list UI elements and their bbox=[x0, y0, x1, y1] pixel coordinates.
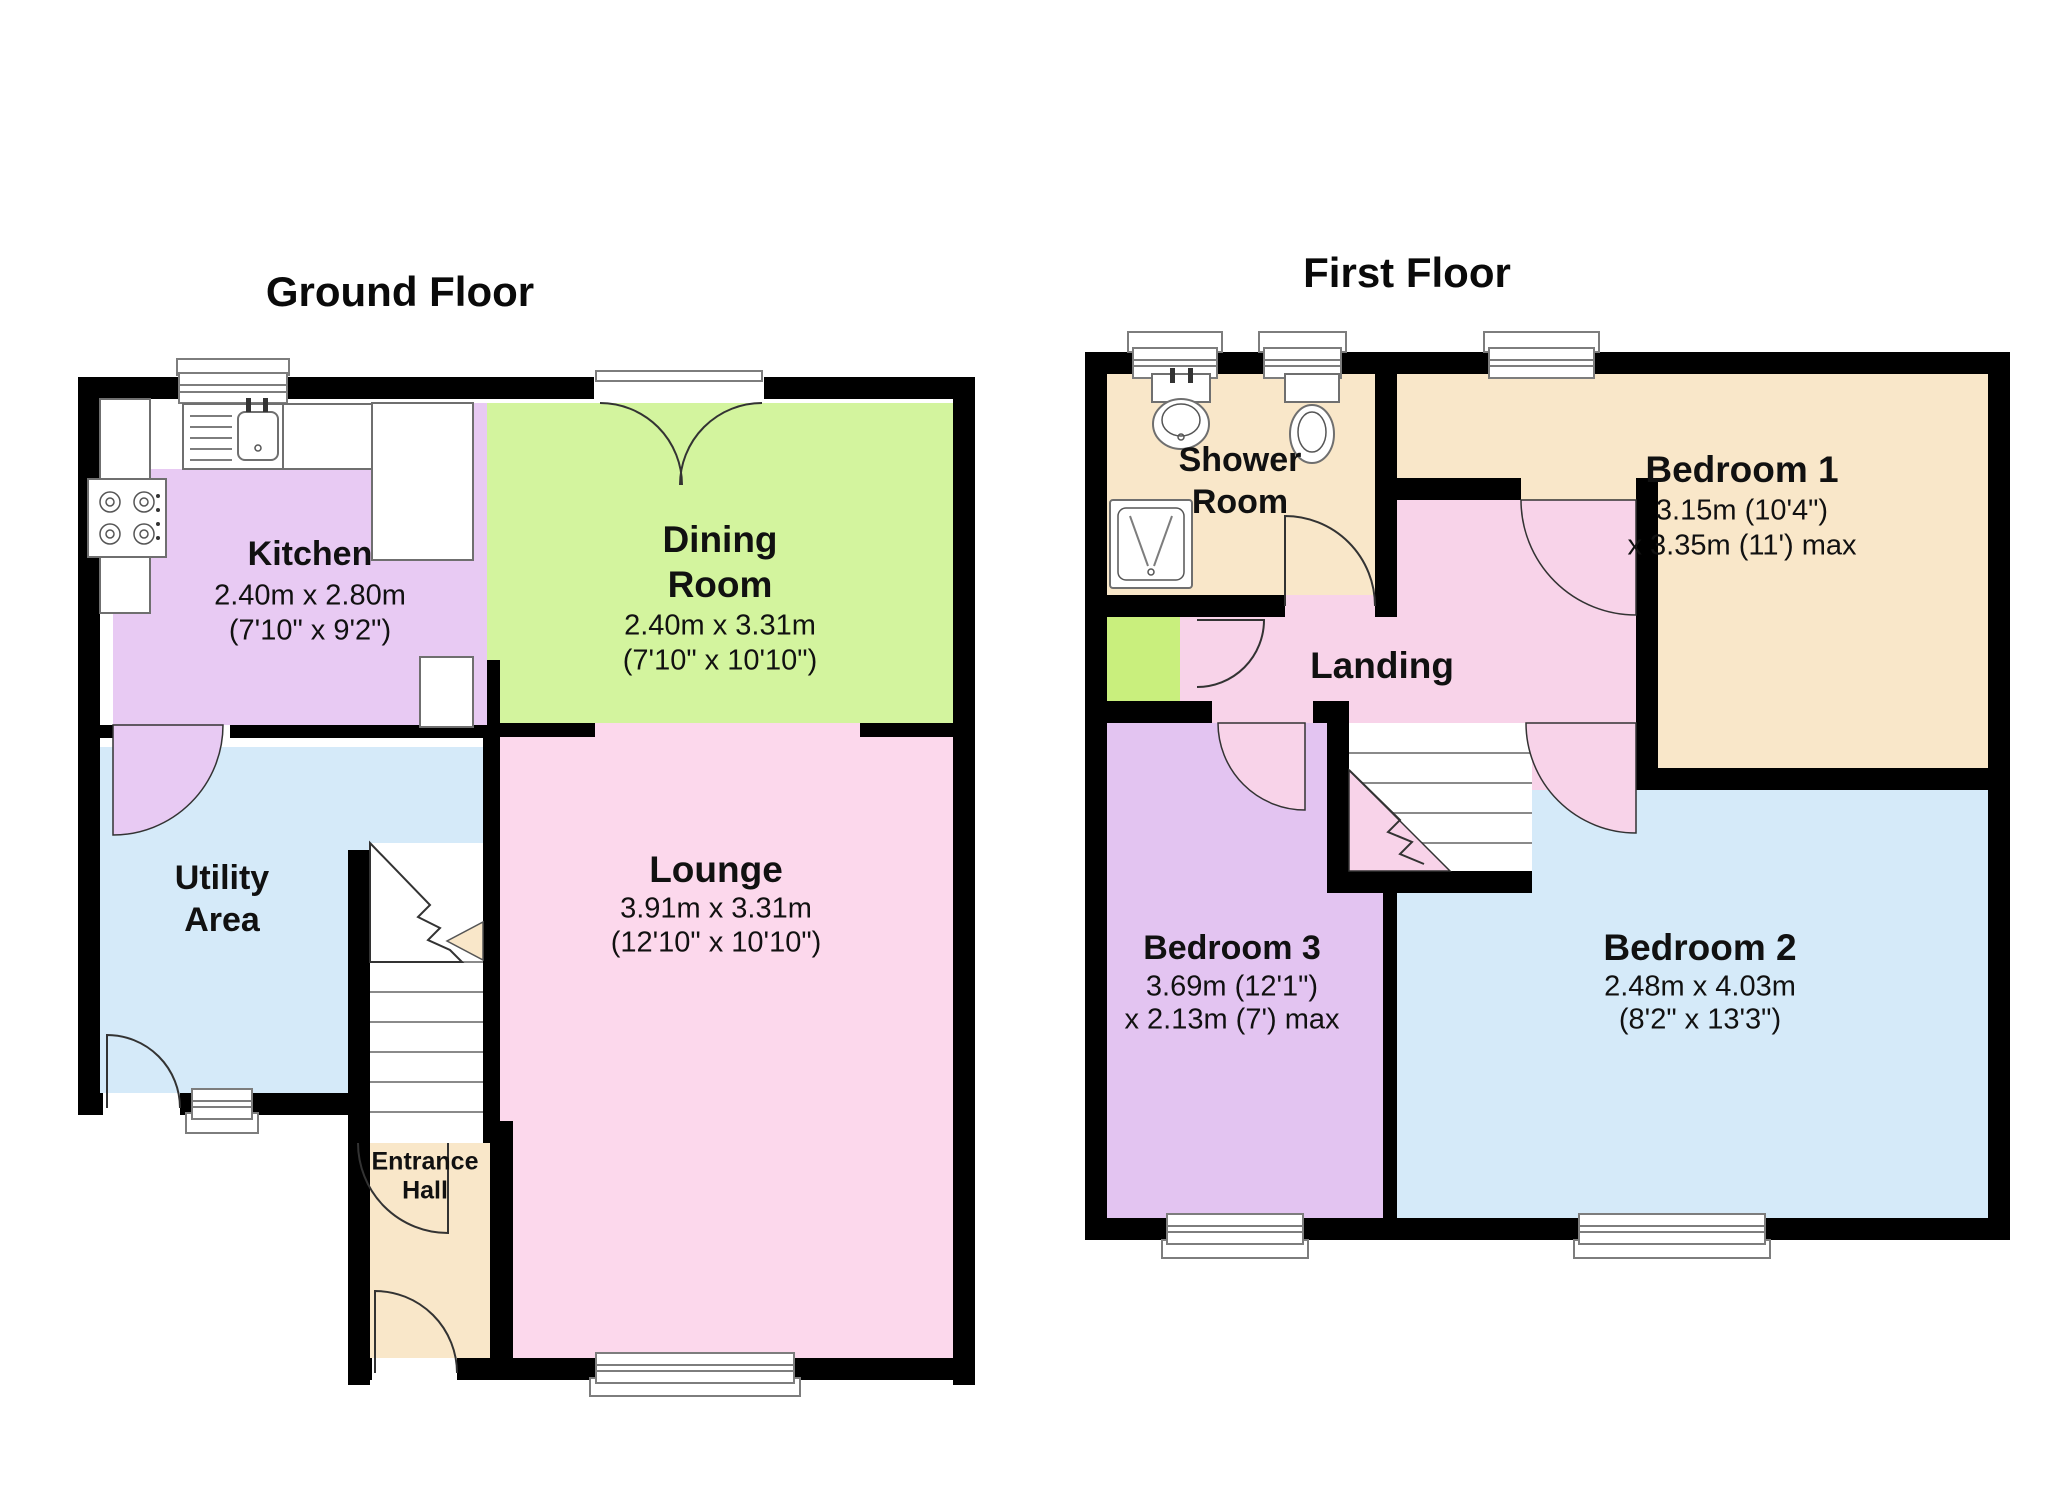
utility-door-gap bbox=[103, 1093, 180, 1115]
dining-dim2: (7'10" x 10'10") bbox=[623, 645, 818, 677]
bedroom1-dim2: x 3.35m (11') max bbox=[1627, 530, 1857, 562]
first-floor-plan: First Floor bbox=[1085, 249, 2010, 1258]
bedroom2-label: Bedroom 2 bbox=[1603, 927, 1796, 968]
kitchen-dim2: (7'10" x 9'2") bbox=[229, 615, 391, 647]
bedroom1-window bbox=[1489, 348, 1594, 378]
entrance-label-1: Entrance bbox=[372, 1148, 479, 1176]
kitchen-window bbox=[179, 373, 287, 403]
dining-label-2: Room bbox=[668, 564, 773, 605]
ground-floor-title: Ground Floor bbox=[266, 268, 534, 315]
bedroom2-dim2: (8'2" x 13'3") bbox=[1619, 1004, 1781, 1036]
bedroom2-dim1: 2.48m x 4.03m bbox=[1604, 971, 1796, 1003]
bedroom3-dim2: x 2.13m (7') max bbox=[1124, 1004, 1340, 1036]
dining-dim1: 2.40m x 3.31m bbox=[624, 610, 816, 642]
floorplan-canvas: Ground Floor bbox=[0, 0, 2048, 1489]
sink-basin-icon bbox=[238, 412, 278, 460]
stove-icon bbox=[88, 479, 166, 557]
kitchen-counter bbox=[372, 403, 473, 560]
first-floor-title: First Floor bbox=[1303, 249, 1511, 296]
lounge-dim1: 3.91m x 3.31m bbox=[620, 893, 812, 925]
lounge-window bbox=[596, 1353, 794, 1383]
ground-floor-plan: Ground Floor bbox=[78, 268, 975, 1396]
bedroom3-window bbox=[1167, 1214, 1303, 1244]
kitchen-room bbox=[473, 403, 487, 725]
utility-label-1: Utility bbox=[175, 859, 270, 897]
tap-icon bbox=[263, 398, 268, 412]
dining-doors-frame bbox=[596, 371, 762, 381]
ground-stairs bbox=[370, 843, 483, 1143]
tap-icon bbox=[1188, 368, 1193, 383]
cupboard bbox=[1107, 617, 1180, 701]
bedroom3-dim1: 3.69m (12'1") bbox=[1146, 971, 1318, 1003]
kitchen-label: Kitchen bbox=[248, 535, 373, 573]
shower-label-1: Shower bbox=[1179, 441, 1302, 479]
floorplan-svg: Ground Floor bbox=[0, 0, 2048, 1489]
shower-label-2: Room bbox=[1192, 483, 1288, 521]
tap-icon bbox=[1170, 368, 1175, 383]
bedroom1-label: Bedroom 1 bbox=[1645, 449, 1838, 490]
basin-counter bbox=[1152, 374, 1210, 402]
front-door-gap bbox=[372, 1358, 457, 1380]
utility-label-2: Area bbox=[184, 901, 261, 939]
toilet-cistern-icon bbox=[1285, 374, 1339, 402]
kitchen-room bbox=[113, 657, 420, 725]
kitchen-counter bbox=[283, 404, 372, 469]
entrance-label-2: Hall bbox=[402, 1177, 448, 1205]
bedroom2-room bbox=[1658, 790, 1988, 893]
kitchen-dim1: 2.40m x 2.80m bbox=[214, 580, 406, 612]
lounge-dim2: (12'10" x 10'10") bbox=[611, 927, 822, 959]
lounge-opening bbox=[595, 723, 860, 737]
lounge-room bbox=[500, 737, 953, 1358]
kitchen-counter bbox=[420, 657, 473, 727]
bedroom3-label: Bedroom 3 bbox=[1143, 929, 1321, 967]
lounge-label: Lounge bbox=[649, 849, 783, 890]
kitchen-room bbox=[113, 613, 150, 657]
utility-window bbox=[192, 1089, 252, 1119]
bedroom2-window bbox=[1579, 1214, 1765, 1244]
first-stairs bbox=[1349, 723, 1532, 871]
bedroom1-dim1: 3.15m (10'4") bbox=[1656, 495, 1828, 527]
tap-icon bbox=[246, 398, 251, 412]
landing-room bbox=[1285, 595, 1375, 617]
dining-label-1: Dining bbox=[662, 519, 777, 560]
landing-label: Landing bbox=[1310, 645, 1454, 686]
